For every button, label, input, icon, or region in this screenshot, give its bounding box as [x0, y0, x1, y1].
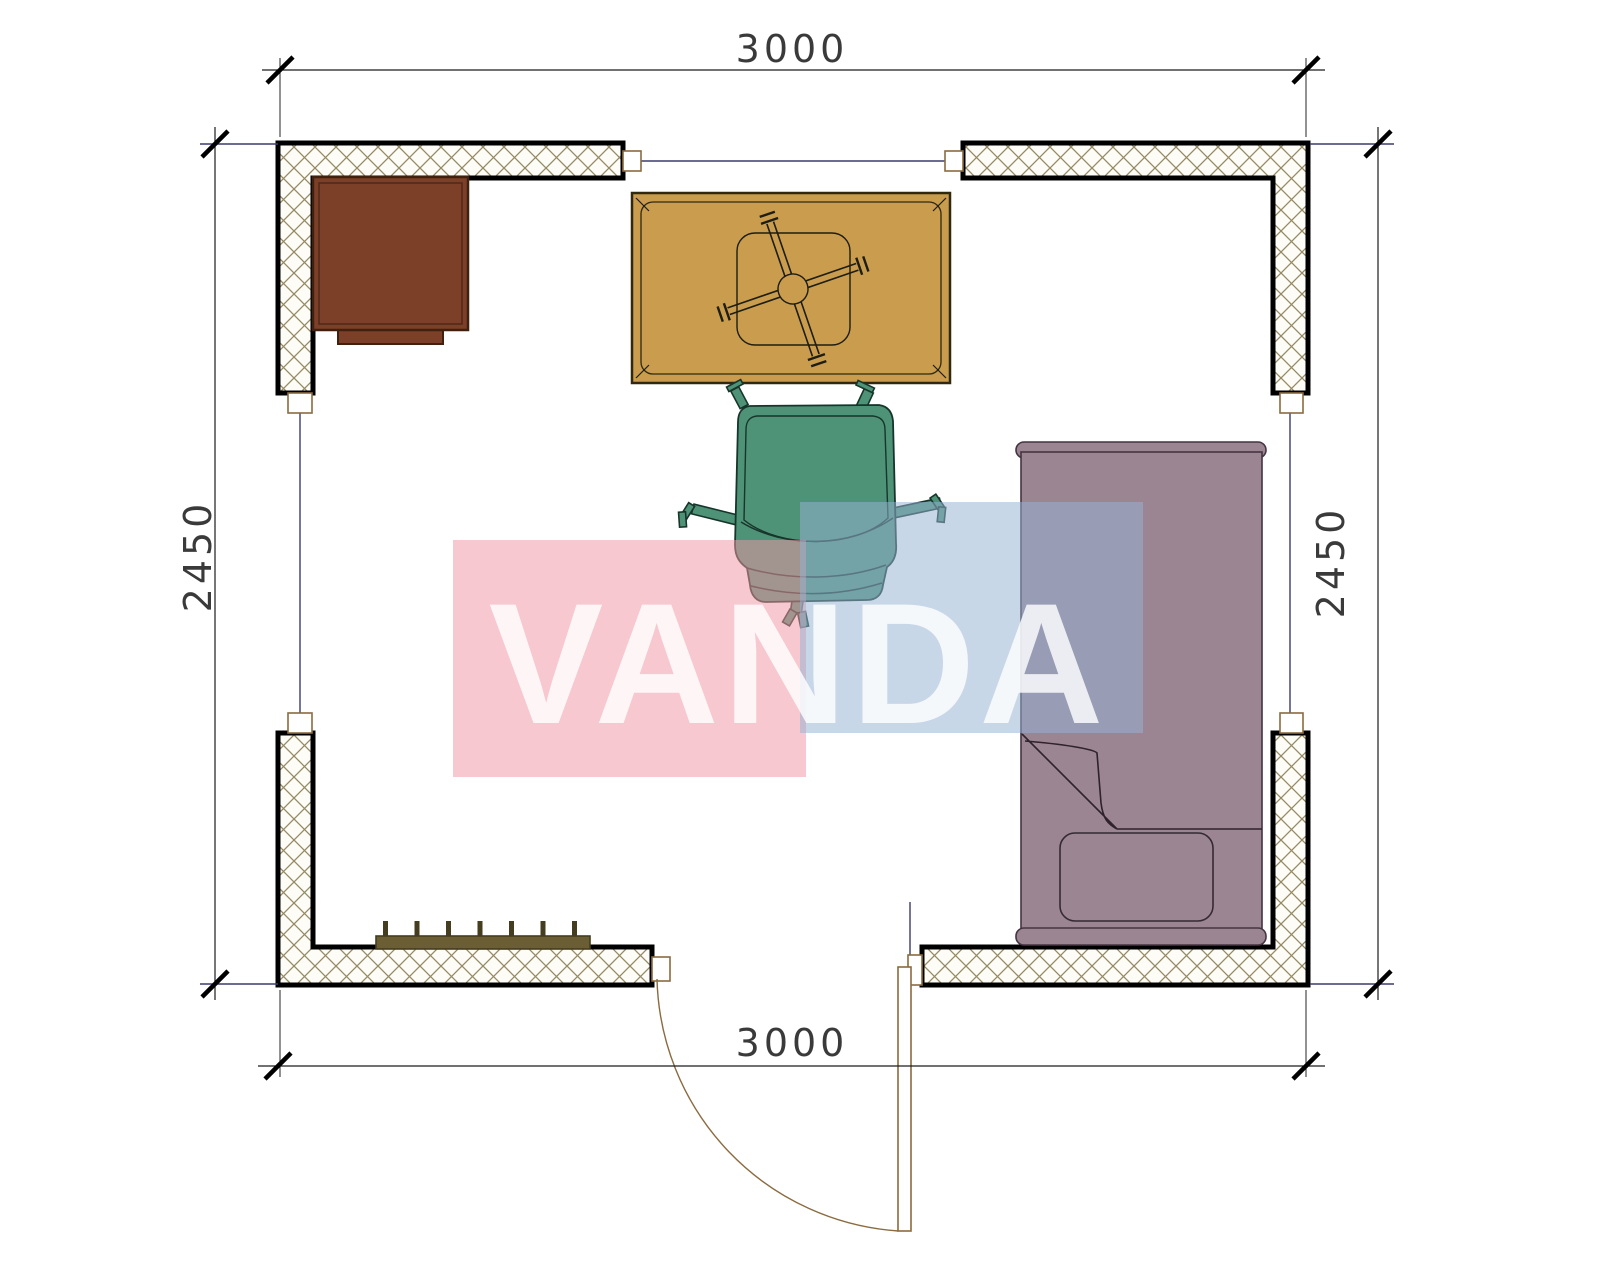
dimension-bottom-label: 3000: [736, 1021, 849, 1065]
dimension-right-label: 2450: [1309, 506, 1353, 619]
watermark-text: VANDA: [489, 568, 1108, 760]
dimension-left: 2450: [176, 127, 278, 1000]
floor-plan-canvas: 3000 3000 2450 2450 VANDA: [0, 0, 1600, 1280]
window-jamb: [623, 151, 641, 171]
watermark: VANDA: [453, 502, 1143, 777]
dimension-left-label: 2450: [176, 500, 220, 613]
wall-top-right: [963, 143, 1308, 393]
window-jamb: [945, 151, 963, 171]
dimension-top: 3000: [262, 27, 1325, 137]
window-jamb: [288, 713, 312, 733]
window-jamb: [1280, 393, 1303, 413]
bed-footboard: [1016, 928, 1266, 945]
table: [632, 189, 950, 389]
bed-pillow: [1060, 833, 1213, 921]
window-jamb: [1280, 713, 1303, 733]
dimension-bottom: 3000: [258, 990, 1325, 1079]
floor-plan-drawing: 3000 3000 2450 2450 VANDA: [0, 0, 1600, 1280]
dimension-right: 2450: [1309, 127, 1394, 1000]
door-leaf: [898, 967, 911, 1231]
window-jamb: [288, 393, 312, 413]
cabinet-desk: [313, 177, 468, 344]
dimension-top-label: 3000: [736, 27, 849, 71]
door-swing-arc: [657, 979, 898, 1231]
door-jamb-left: [652, 957, 670, 981]
radiator: [376, 921, 590, 949]
